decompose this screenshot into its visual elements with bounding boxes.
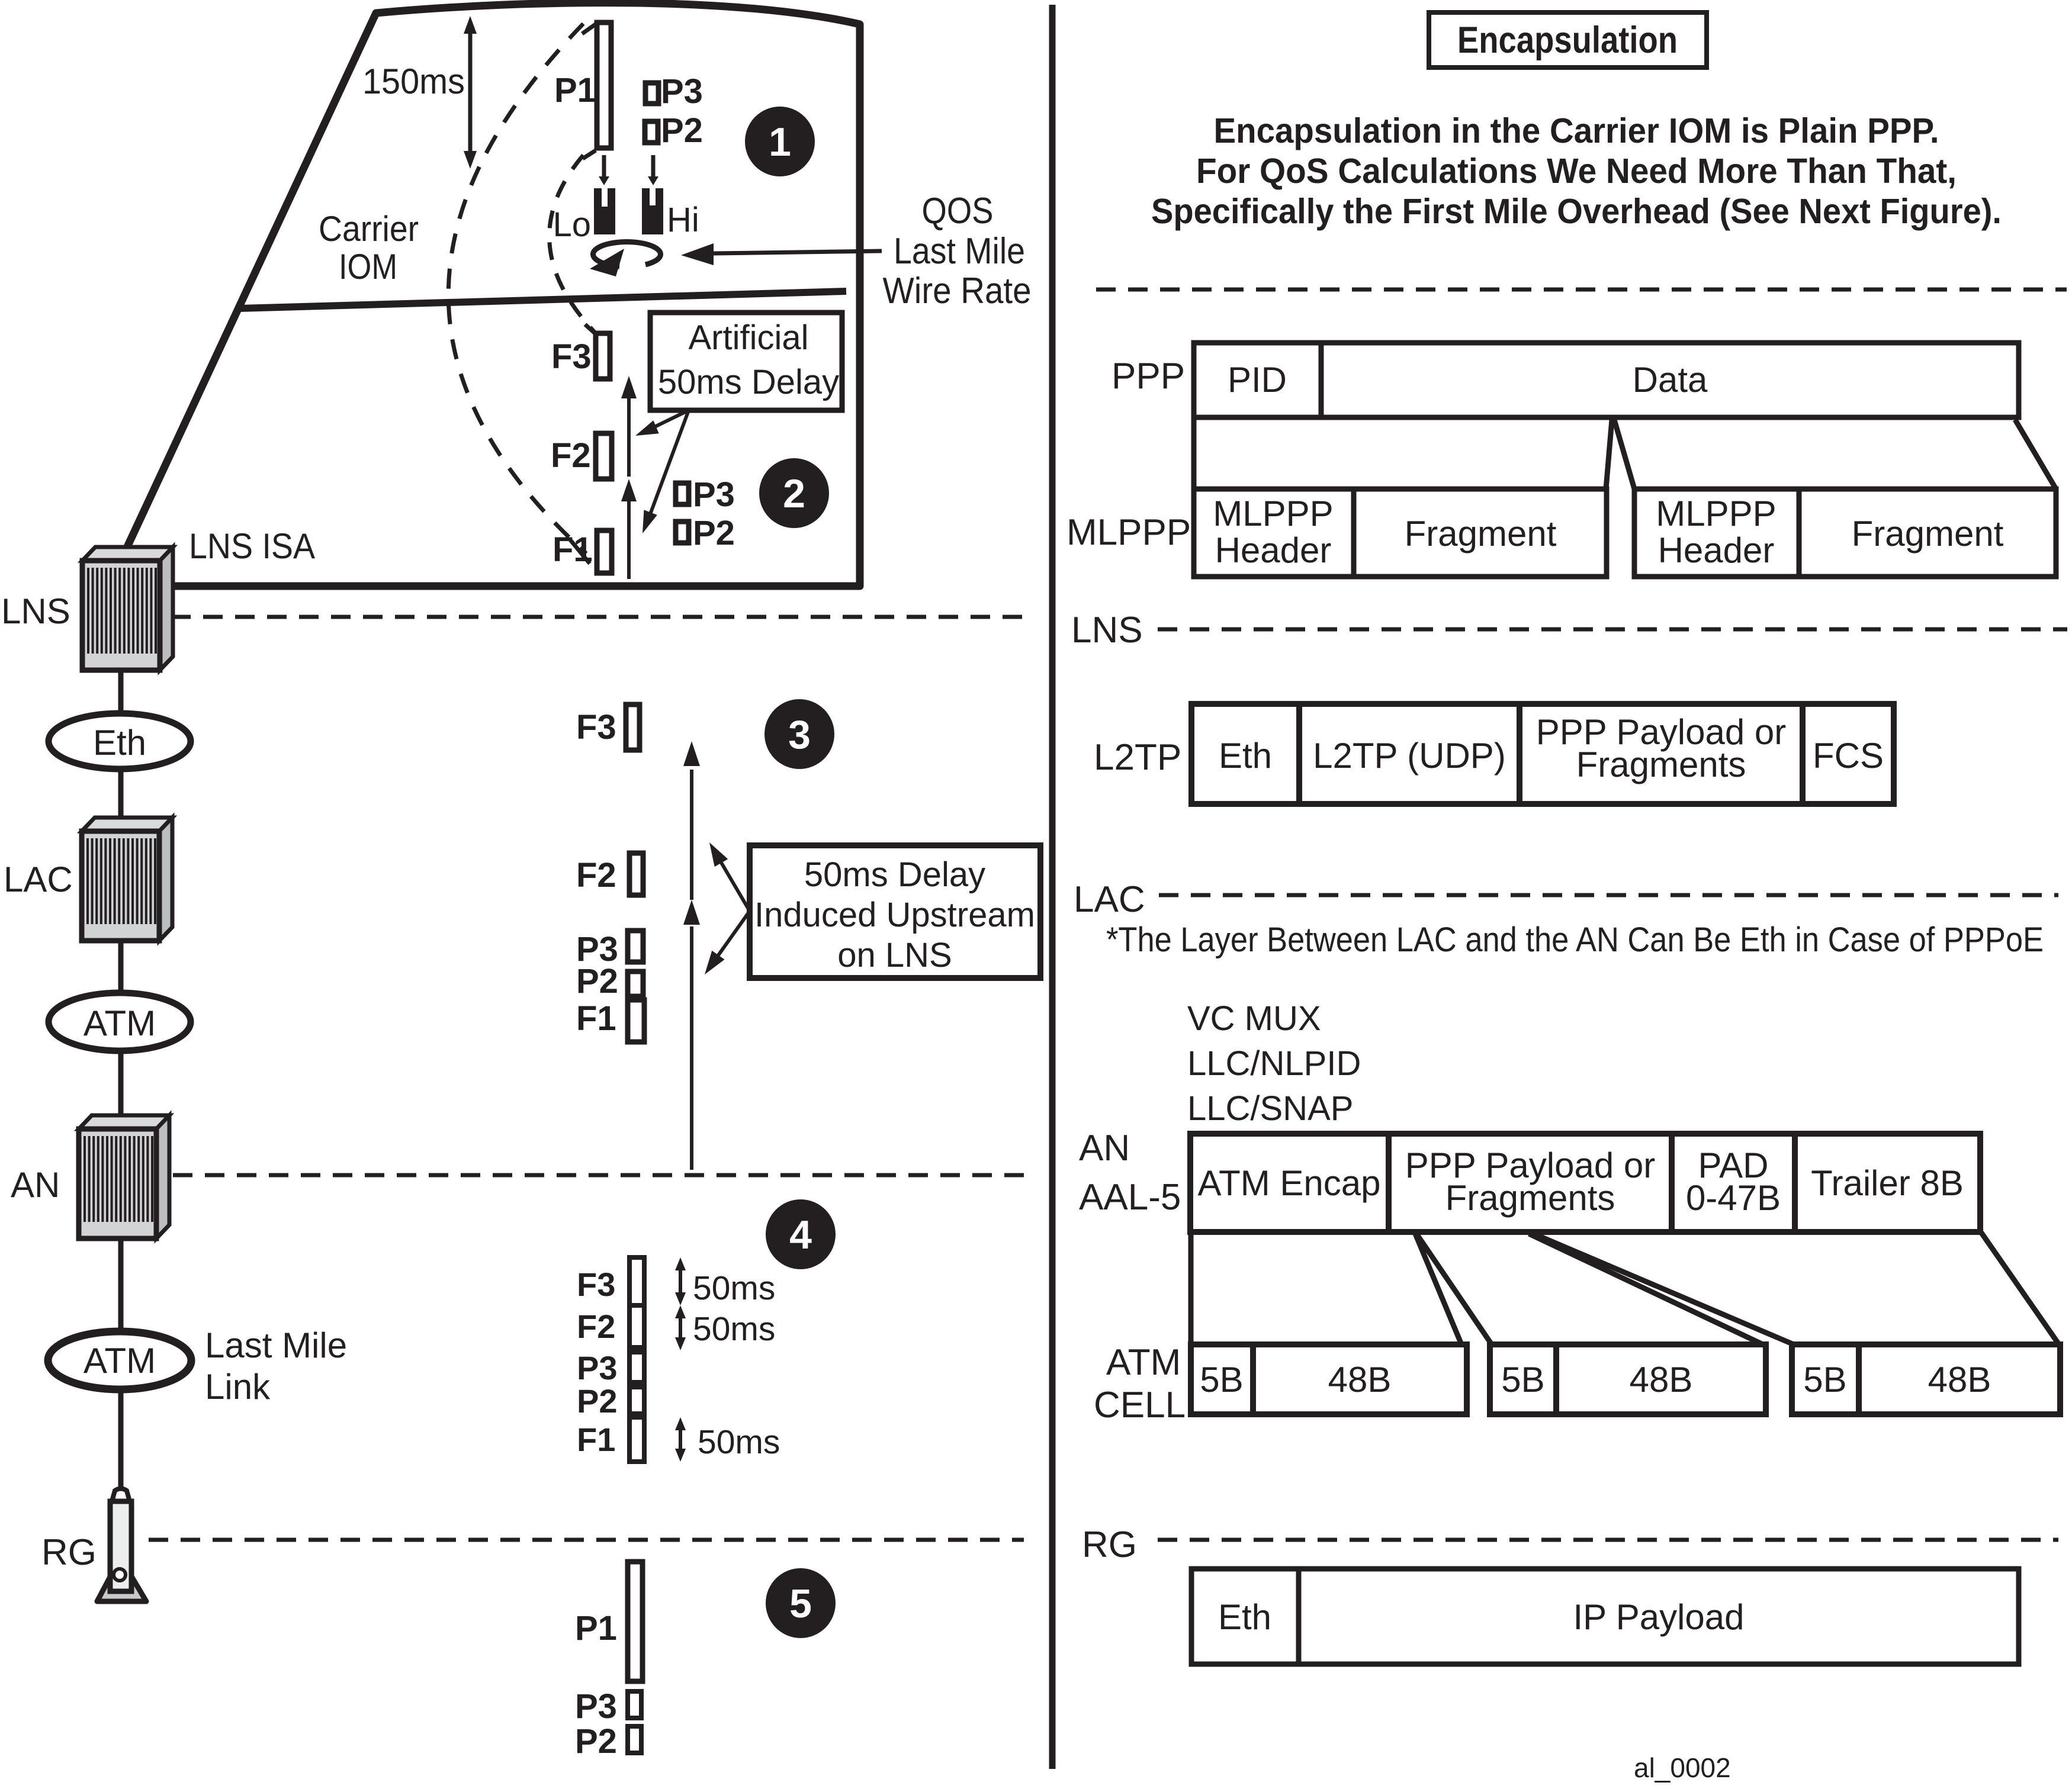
svg-text:AN: AN <box>1079 1128 1130 1169</box>
svg-text:5B: 5B <box>1200 1360 1243 1400</box>
svg-text:IOM: IOM <box>339 247 397 287</box>
svg-text:Trailer 8B: Trailer 8B <box>1811 1163 1964 1203</box>
svg-text:P2: P2 <box>693 514 735 552</box>
svg-text:LNS: LNS <box>1071 610 1143 651</box>
svg-text:P2: P2 <box>577 1382 618 1420</box>
svg-text:AN: AN <box>11 1165 60 1205</box>
svg-text:on LNS: on LNS <box>837 936 952 974</box>
svg-text:Lo: Lo <box>552 205 591 244</box>
svg-text:al_0002: al_0002 <box>1634 1752 1731 1783</box>
svg-text:P2: P2 <box>576 962 618 1000</box>
svg-text:P2: P2 <box>661 111 703 150</box>
svg-text:RG: RG <box>41 1532 97 1573</box>
svg-text:Eth: Eth <box>1218 1597 1271 1637</box>
svg-text:P3: P3 <box>693 475 735 514</box>
svg-text:150ms: 150ms <box>362 62 465 101</box>
svg-text:*The Layer Between LAC and the: *The Layer Between LAC and the AN Can Be… <box>1106 921 2044 959</box>
svg-text:P2: P2 <box>575 1722 617 1761</box>
svg-text:3: 3 <box>788 712 811 757</box>
svg-text:PPP: PPP <box>1112 356 1185 397</box>
svg-text:5: 5 <box>789 1581 812 1626</box>
svg-text:F1: F1 <box>552 530 593 569</box>
svg-text:AAL-5: AAL-5 <box>1079 1177 1181 1218</box>
svg-text:For QoS Calculations We Need M: For QoS Calculations We Need More Than T… <box>1196 152 1957 191</box>
svg-text:48B: 48B <box>1630 1360 1693 1400</box>
svg-text:Wire Rate: Wire Rate <box>883 271 1032 311</box>
svg-text:0-47B: 0-47B <box>1686 1178 1781 1218</box>
svg-text:LAC: LAC <box>1074 879 1145 920</box>
svg-text:Hi: Hi <box>667 201 699 239</box>
svg-text:5B: 5B <box>1501 1360 1544 1400</box>
svg-text:Encapsulation: Encapsulation <box>1457 20 1678 61</box>
svg-text:LLC/SNAP: LLC/SNAP <box>1187 1089 1353 1128</box>
svg-text:1: 1 <box>769 120 791 165</box>
svg-text:ATM Encap: ATM Encap <box>1198 1163 1381 1203</box>
svg-text:Fragments: Fragments <box>1576 745 1746 784</box>
svg-text:ATM: ATM <box>1106 1342 1181 1383</box>
svg-text:Fragment: Fragment <box>1405 514 1557 554</box>
svg-text:Carrier: Carrier <box>319 209 419 249</box>
svg-text:L2TP: L2TP <box>1094 737 1181 778</box>
svg-text:Last Mile: Last Mile <box>894 231 1025 272</box>
svg-text:LLC/NLPID: LLC/NLPID <box>1187 1044 1361 1083</box>
svg-text:F3: F3 <box>577 1266 615 1303</box>
svg-text:50ms: 50ms <box>693 1269 775 1307</box>
svg-text:MLPPP: MLPPP <box>1066 512 1191 553</box>
svg-text:P3: P3 <box>577 1349 618 1386</box>
svg-text:LNS ISA: LNS ISA <box>189 526 315 566</box>
svg-text:VC MUX: VC MUX <box>1187 999 1321 1038</box>
svg-text:50ms Delay: 50ms Delay <box>804 855 985 894</box>
svg-text:5B: 5B <box>1803 1360 1846 1400</box>
svg-text:ATM: ATM <box>83 1341 156 1381</box>
svg-text:P1: P1 <box>575 1609 617 1648</box>
svg-text:Eth: Eth <box>93 723 146 763</box>
svg-text:F1: F1 <box>576 999 616 1038</box>
svg-text:LAC: LAC <box>4 860 73 899</box>
svg-text:48B: 48B <box>1328 1360 1392 1400</box>
svg-text:MLPPP: MLPPP <box>1656 494 1776 533</box>
svg-text:50ms Delay: 50ms Delay <box>658 363 839 401</box>
svg-text:50ms: 50ms <box>693 1310 775 1348</box>
svg-text:Artificial: Artificial <box>688 318 808 357</box>
svg-text:Link: Link <box>205 1367 271 1407</box>
svg-text:48B: 48B <box>1928 1360 1991 1400</box>
svg-text:Last Mile: Last Mile <box>205 1325 347 1365</box>
svg-text:Induced Upstream: Induced Upstream <box>754 896 1035 934</box>
svg-text:F2: F2 <box>577 1308 615 1345</box>
svg-text:F2: F2 <box>551 436 591 475</box>
svg-text:F3: F3 <box>551 337 592 376</box>
svg-text:4: 4 <box>789 1212 812 1257</box>
svg-text:P3: P3 <box>661 72 703 111</box>
svg-text:CELL: CELL <box>1094 1385 1186 1426</box>
svg-text:F2: F2 <box>576 856 616 895</box>
svg-text:Specifically the First Mile Ov: Specifically the First Mile Overhead (Se… <box>1151 192 2002 231</box>
svg-text:Data: Data <box>1633 360 1708 400</box>
svg-text:P1: P1 <box>554 71 596 110</box>
svg-text:Fragment: Fragment <box>1852 514 2004 554</box>
svg-text:L2TP (UDP): L2TP (UDP) <box>1313 736 1506 776</box>
svg-text:2: 2 <box>783 471 805 516</box>
svg-text:Header: Header <box>1658 530 1775 570</box>
svg-text:Header: Header <box>1215 530 1332 570</box>
svg-text:IP Payload: IP Payload <box>1573 1597 1744 1637</box>
svg-text:QOS: QOS <box>922 191 994 231</box>
svg-text:Eth: Eth <box>1219 736 1272 776</box>
svg-text:Fragments: Fragments <box>1445 1178 1615 1218</box>
svg-text:LNS: LNS <box>1 591 70 631</box>
svg-text:Encapsulation in the Carrier I: Encapsulation in the Carrier IOM is Plai… <box>1214 111 1939 150</box>
svg-text:FCS: FCS <box>1813 736 1884 776</box>
svg-text:ATM: ATM <box>83 1003 156 1043</box>
svg-text:P3: P3 <box>575 1687 617 1726</box>
svg-text:RG: RG <box>1082 1524 1137 1565</box>
svg-text:50ms: 50ms <box>698 1423 780 1461</box>
svg-text:PID: PID <box>1228 360 1287 400</box>
svg-text:F1: F1 <box>577 1421 615 1458</box>
svg-text:F3: F3 <box>576 708 616 747</box>
svg-text:MLPPP: MLPPP <box>1213 494 1333 533</box>
